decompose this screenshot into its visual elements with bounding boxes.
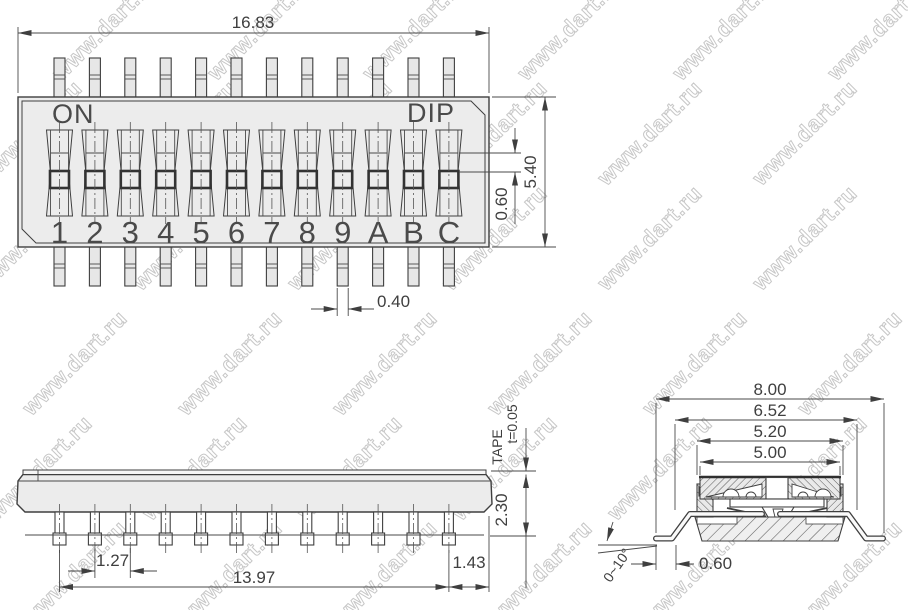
on-label: ON	[52, 99, 95, 129]
side-view-tape	[23, 470, 486, 475]
dim-foot-angle: 0~10°	[598, 522, 657, 585]
dim-pin-span-label: 13.97	[233, 568, 276, 587]
dim-tape-thickness-label: t=0.05	[504, 404, 520, 444]
dim-pin-width-label: 0.40	[377, 292, 410, 311]
svg-text:4: 4	[157, 215, 174, 250]
dim-top-overall-width-label: 16.83	[232, 13, 275, 32]
svg-text:9: 9	[334, 215, 351, 250]
svg-text:B: B	[403, 215, 424, 250]
dim-section-cap-width-label: 5.00	[753, 443, 786, 462]
top-view-pins-lower	[54, 247, 454, 286]
dim-body-height-label: 2.30	[492, 493, 511, 526]
side-view: 1.27 13.97 1.43 TAPE t=0.05 2.30	[17, 404, 536, 592]
dim-end-offset-label: 1.43	[452, 553, 485, 572]
dim-foot-angle-label: 0~10°	[600, 545, 634, 585]
svg-text:5: 5	[192, 215, 209, 250]
dim-actuator-travel-label: 0.60	[492, 187, 511, 220]
svg-text:8: 8	[299, 215, 316, 250]
dim-foot-length-label: 0.60	[699, 554, 732, 573]
svg-text:2: 2	[86, 215, 103, 250]
svg-text:A: A	[368, 215, 389, 250]
tape-label: TAPE	[489, 429, 505, 465]
side-view-body	[17, 475, 492, 513]
section-slider-bar	[730, 499, 824, 507]
svg-text:3: 3	[122, 215, 139, 250]
dim-pin-pitch-label: 1.27	[96, 551, 129, 570]
svg-text:1: 1	[51, 215, 68, 250]
svg-text:7: 7	[263, 215, 280, 250]
svg-text:6: 6	[228, 215, 245, 250]
dim-section-lead-span-label: 6.52	[753, 401, 786, 420]
dim-top-overall-height-label: 5.40	[521, 155, 540, 188]
dim-section-body-width-label: 5.20	[753, 422, 786, 441]
technical-drawing-page: www.dart.ru ON DIP 1 2 3	[0, 0, 908, 610]
section-actuator-knob	[766, 478, 788, 500]
dip-switch-drawing: www.dart.ru ON DIP 1 2 3	[0, 0, 908, 610]
dim-section-overall-label: 8.00	[753, 380, 786, 399]
dim-pin-width: 0.40	[311, 288, 410, 316]
svg-text:C: C	[438, 215, 460, 250]
dip-label: DIP	[407, 98, 455, 128]
